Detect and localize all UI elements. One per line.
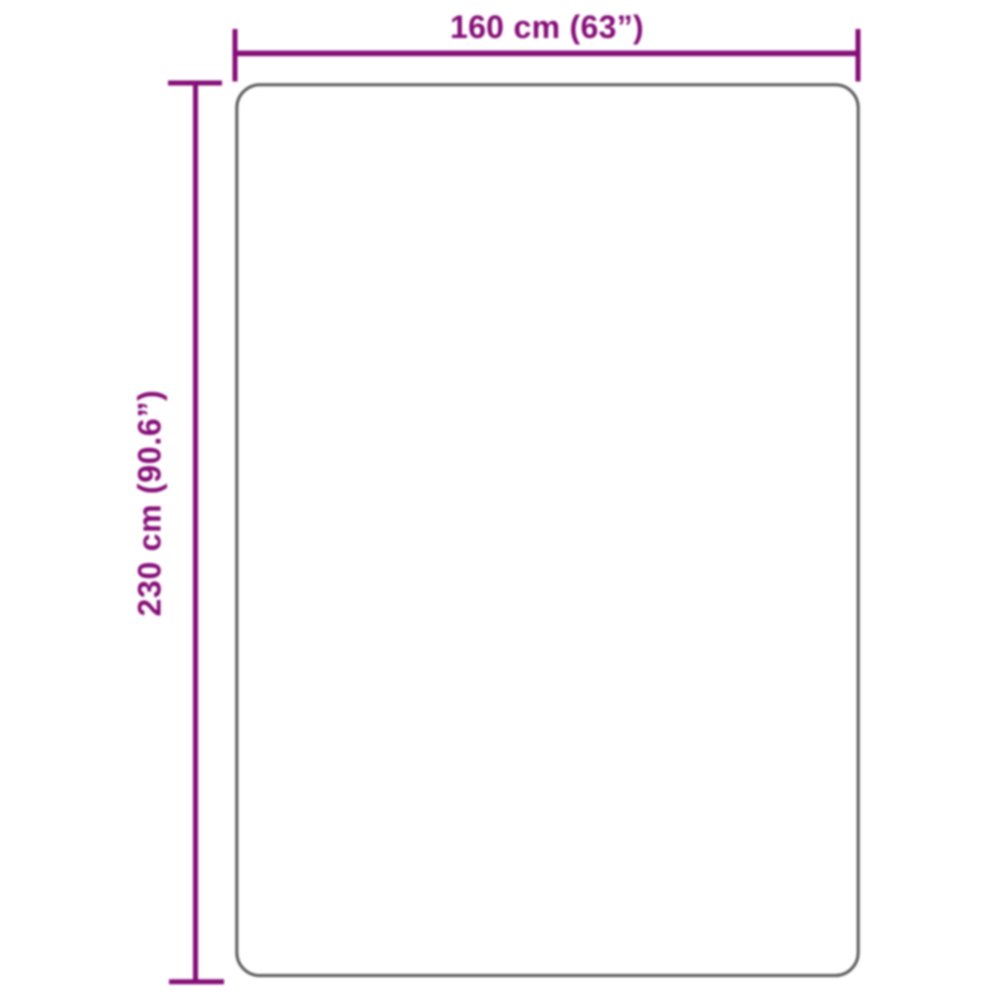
svg-text:160 cm (63”): 160 cm (63”) bbox=[450, 9, 644, 45]
svg-text:230 cm (90.6”): 230 cm (90.6”) bbox=[131, 389, 167, 616]
